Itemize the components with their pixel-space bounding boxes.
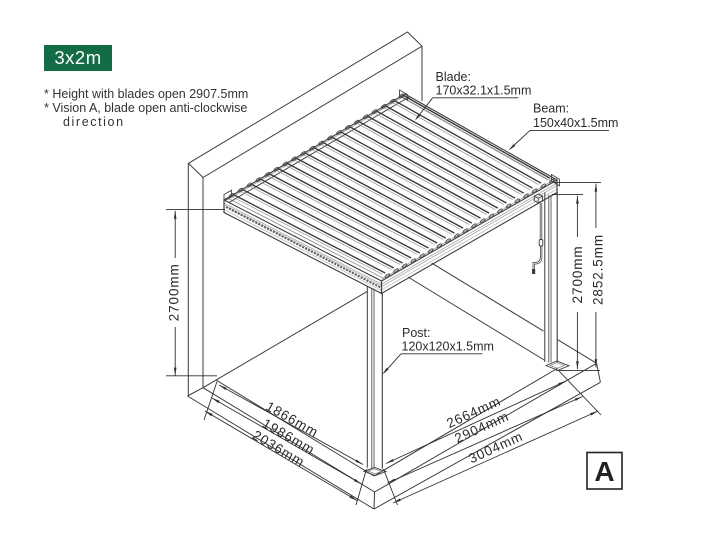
- svg-text:Beam:: Beam:: [533, 102, 569, 116]
- svg-text:A: A: [594, 456, 614, 487]
- svg-text:120x120x1.5mm: 120x120x1.5mm: [402, 340, 494, 354]
- svg-text:2700mm: 2700mm: [570, 245, 585, 303]
- svg-text:Blade:: Blade:: [436, 70, 471, 84]
- svg-text:2700mm: 2700mm: [167, 263, 182, 321]
- svg-text:170x32.1x1.5mm: 170x32.1x1.5mm: [436, 84, 532, 98]
- svg-text:Post:: Post:: [402, 326, 431, 340]
- svg-text:2852.5mm: 2852.5mm: [590, 234, 605, 305]
- svg-text:150x40x1.5mm: 150x40x1.5mm: [533, 116, 618, 130]
